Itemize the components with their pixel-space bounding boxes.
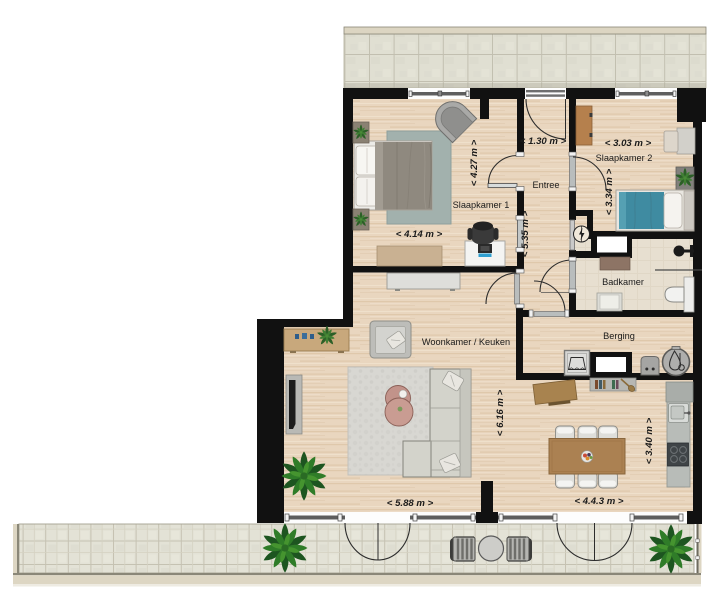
svg-text:Woonkamer / Keuken: Woonkamer / Keuken — [422, 337, 510, 347]
svg-text:Berging: Berging — [603, 331, 635, 341]
svg-text:Slaapkamer 1: Slaapkamer 1 — [453, 200, 510, 210]
svg-text:< 1.30 m >: < 1.30 m > — [520, 136, 567, 147]
svg-text:< 5.35 m >: < 5.35 m > — [520, 210, 531, 257]
svg-text:Entree: Entree — [532, 180, 559, 190]
svg-text:< 4.27 m >: < 4.27 m > — [469, 139, 480, 186]
svg-text:< 5.88 m >: < 5.88 m > — [387, 498, 434, 509]
svg-text:< 3.40 m >: < 3.40 m > — [644, 417, 655, 464]
svg-text:< 3.34 m >: < 3.34 m > — [604, 168, 615, 215]
svg-text:< 4.4.3 m >: < 4.4.3 m > — [574, 496, 623, 507]
svg-text:< 3.03 m >: < 3.03 m > — [605, 138, 652, 149]
svg-text:< 4.14 m >: < 4.14 m > — [396, 229, 443, 240]
svg-text:< 6.16 m >: < 6.16 m > — [495, 389, 506, 436]
svg-text:Slaapkamer 2: Slaapkamer 2 — [596, 153, 653, 163]
svg-text:Badkamer: Badkamer — [602, 277, 644, 287]
